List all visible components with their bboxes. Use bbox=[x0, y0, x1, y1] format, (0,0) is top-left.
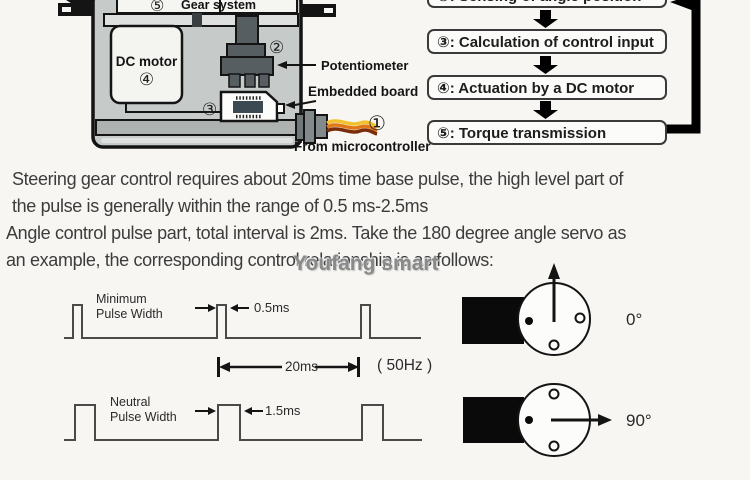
potentiometer-label: Potentiometer bbox=[321, 58, 408, 73]
product-diagram: ⑤ Gear system DC motor ④ ② Potentiometer… bbox=[0, 0, 750, 480]
board-number: ③ bbox=[202, 100, 217, 120]
pot-leg bbox=[229, 74, 240, 87]
period-label: 20ms bbox=[285, 359, 318, 374]
neutral-pulse-value: 1.5ms bbox=[265, 403, 300, 418]
gear-number: ⑤ bbox=[150, 0, 164, 16]
left-flange-slot bbox=[62, 7, 71, 12]
embedded-board-label: Embedded board bbox=[308, 84, 418, 99]
pot-number: ② bbox=[269, 38, 284, 58]
chip bbox=[233, 101, 263, 113]
servo-cutaway-drawing bbox=[58, 0, 377, 147]
neutral-pulse-width-label: Neutral Pulse Width bbox=[110, 395, 177, 425]
feedback-loop-line bbox=[664, 0, 696, 129]
pot-shaft bbox=[236, 16, 258, 45]
connector-neck bbox=[296, 114, 304, 140]
frequency-label: ( 50Hz ) bbox=[377, 357, 432, 375]
bottom-inset-strip bbox=[101, 138, 293, 143]
flow-step-torque: ⑤: Torque transmission bbox=[427, 120, 667, 145]
connector-tip bbox=[315, 115, 327, 138]
pot-leg bbox=[245, 74, 255, 87]
pot-body bbox=[221, 57, 273, 75]
flow-step-actuation: ④: Actuation by a DC motor bbox=[427, 75, 667, 100]
flow-step-sensing: ②: Sensing of angle position bbox=[427, 0, 667, 8]
dc-motor-label: DC motor bbox=[111, 54, 182, 69]
cable-number: ① bbox=[368, 111, 386, 136]
pot-leg bbox=[259, 74, 269, 87]
right-flange-slot bbox=[324, 8, 333, 13]
board-tab bbox=[277, 104, 284, 113]
minimum-pulse-value: 0.5ms bbox=[254, 300, 289, 315]
flow-step-calculation: ③: Calculation of control input bbox=[427, 29, 667, 54]
angle-90-label: 90° bbox=[626, 411, 652, 431]
minimum-pulse-width-label: Minimum Pulse Width bbox=[96, 292, 163, 322]
flowchart-arrows bbox=[533, 10, 558, 119]
from-microcontroller-label: From microcontroller bbox=[294, 139, 431, 154]
angle-0-label: 0° bbox=[626, 310, 642, 330]
pot-flange bbox=[227, 44, 265, 58]
servo-horn-90deg bbox=[463, 384, 612, 456]
top-plate-gap bbox=[192, 13, 202, 27]
gear-system-label: Gear system bbox=[181, 0, 256, 12]
servo-horn-0deg bbox=[462, 263, 590, 355]
dc-motor-number: ④ bbox=[111, 70, 182, 90]
watermark-youfang-smart: Youfang smart bbox=[293, 252, 438, 276]
paragraph-pulse-range: Steering gear control requires about 20m… bbox=[12, 166, 623, 220]
